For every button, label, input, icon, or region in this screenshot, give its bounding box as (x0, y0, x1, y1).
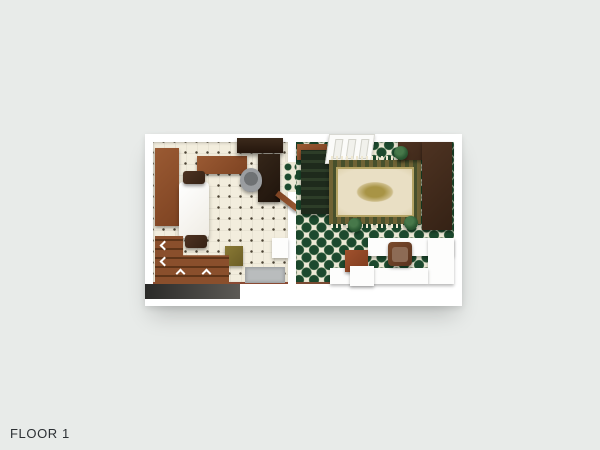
wardrobe-side (422, 142, 452, 230)
doormat (245, 267, 285, 283)
ornate-rug (329, 160, 421, 224)
dining-chair-north (183, 171, 205, 184)
floor-label[interactable]: FLOOR 1 (10, 426, 70, 441)
white-box (350, 266, 374, 286)
left-wall-cabinet (155, 148, 179, 226)
rug-medallion (336, 167, 414, 217)
radiator (272, 238, 288, 258)
office-chair (240, 168, 262, 192)
sideboard (197, 156, 247, 174)
dining-chair-south (185, 235, 207, 248)
plant-pot-icon (404, 216, 418, 230)
dining-table (179, 182, 209, 238)
wall-shelf (237, 138, 283, 153)
bathroom-partition-wall (428, 238, 454, 284)
armchair (388, 242, 412, 266)
plant-pot-icon (348, 218, 362, 232)
plant-pot-icon (394, 146, 408, 160)
floorplan-viewer: FLOOR 1 (0, 0, 600, 450)
floorplan-scene[interactable] (145, 134, 462, 306)
understair-void (145, 284, 240, 299)
